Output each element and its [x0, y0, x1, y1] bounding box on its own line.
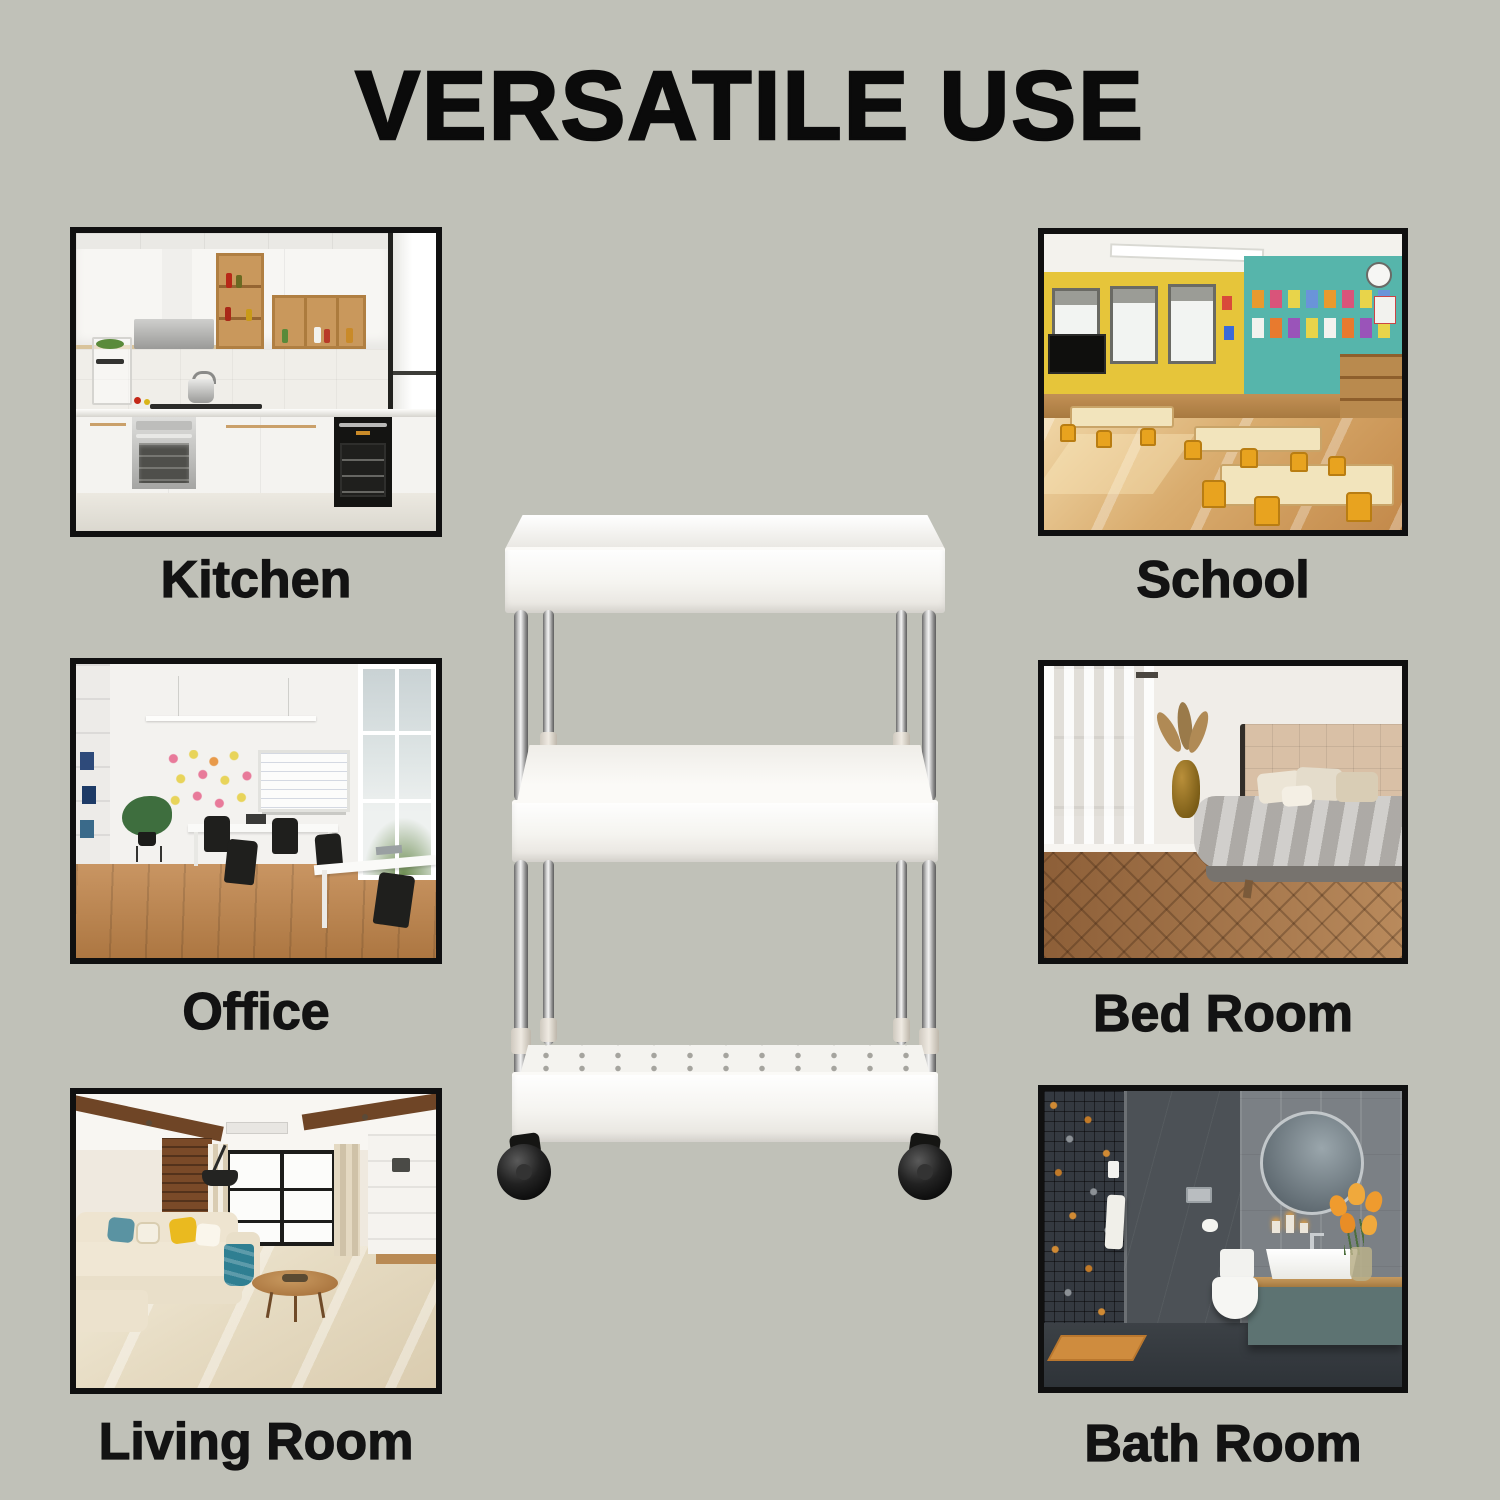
cart-pole-upper-left-back [543, 610, 554, 748]
bedroom-pillow-3 [1336, 772, 1378, 802]
kitchen-label: Kitchen [70, 550, 442, 610]
kitchen-oven-black-display [356, 431, 370, 435]
living-coffee-table-leg-2 [294, 1296, 297, 1322]
bathroom-faucet-spout [1310, 1233, 1324, 1236]
kitchen-countertop [76, 409, 436, 417]
cart-sleeve-bottom-right-back [893, 1018, 910, 1042]
school-poster-blue [1224, 326, 1234, 340]
living-window-mullion-h2 [230, 1220, 332, 1223]
bathroom-photo [1044, 1091, 1402, 1387]
living-table-decor [282, 1274, 308, 1282]
bedroom-bed-skirt [1206, 866, 1402, 882]
kitchen-oven-silver [132, 417, 196, 489]
office-chair-5 [373, 872, 416, 929]
school-chair-7 [1328, 456, 1346, 476]
office-whiteboard-tray [262, 812, 346, 815]
school-table-back [1070, 406, 1174, 428]
cart-pole-upper-right-back [896, 610, 907, 748]
school-tv [1048, 334, 1106, 374]
kitchen-fruit-red [134, 397, 141, 404]
bathroom-paper-roll [1202, 1219, 1218, 1232]
living-window-mullion-v [280, 1154, 284, 1242]
kitchen-bottle-amber [246, 309, 252, 321]
product-photo [490, 510, 960, 1210]
living-room-label: Living Room [70, 1412, 442, 1472]
bedroom-vase [1172, 760, 1200, 818]
bedroom-duvet [1194, 796, 1402, 870]
cart-middle-basket [512, 800, 938, 862]
bedroom-photo [1044, 666, 1402, 958]
office-books-navy [82, 786, 96, 804]
bedroom-photo-frame [1038, 660, 1408, 964]
kitchen-photo [76, 233, 436, 531]
school-chair-10 [1346, 492, 1372, 522]
kitchen-open-shelf-tall [216, 253, 264, 349]
kitchen-oven-silver-control-bar [136, 421, 192, 430]
school-table-middle [1194, 426, 1322, 452]
office-chair-3 [224, 839, 258, 886]
bathroom-towel [1105, 1195, 1126, 1250]
kitchen-oven-black-handle [339, 423, 387, 427]
school-poster-red [1222, 296, 1232, 310]
cart-caster-hub-right [917, 1164, 933, 1180]
bedroom-curtain [1044, 666, 1154, 851]
living-teal-throw [224, 1244, 254, 1286]
bathroom-tulip-2 [1348, 1183, 1365, 1205]
page-title: VERSATILE USE [0, 50, 1500, 162]
kitchen-rack-plant [96, 339, 124, 349]
school-wall-chart [1374, 296, 1396, 324]
kitchen-drawer-handle-1 [90, 423, 126, 426]
living-sofa-seat [76, 1242, 248, 1280]
cart-top-basket-opening [505, 515, 945, 549]
bathroom-candle-3 [1300, 1223, 1308, 1233]
living-room-photo [76, 1094, 436, 1388]
bathroom-label: Bath Room [1038, 1414, 1408, 1474]
living-ceiling-vent [226, 1122, 288, 1134]
office-books-teal [80, 820, 94, 838]
kitchen-oven-black-window [340, 443, 386, 497]
living-pillow-teal [107, 1217, 135, 1244]
cart-caster-hub-left [516, 1164, 532, 1180]
office-books-blue [80, 752, 94, 770]
kitchen-fruit-yellow [144, 399, 150, 405]
office-sticky-notes [166, 750, 258, 822]
office-chair-2 [272, 818, 298, 854]
kitchen-rack-pan [96, 359, 124, 364]
school-label: School [1038, 550, 1408, 610]
page-root: VERSATILE USE [0, 0, 1500, 1500]
office-laptop [246, 814, 266, 824]
office-desk-front-leg [322, 870, 327, 928]
bedroom-label: Bed Room [1038, 984, 1408, 1044]
kitchen-oven-silver-window [139, 443, 189, 483]
living-pillow-patterned [136, 1222, 160, 1244]
kitchen-oven-silver-handle [136, 434, 192, 438]
office-plant-stand [136, 846, 162, 862]
office-light-wire-1 [178, 676, 179, 716]
bathroom-candle-2 [1286, 1215, 1294, 1233]
school-chair-5 [1240, 448, 1258, 468]
kitchen-jar-amber [346, 328, 353, 343]
kitchen-jar-green [282, 329, 288, 343]
living-shelves-right [368, 1134, 436, 1254]
living-floor-lamp-shade [202, 1170, 238, 1186]
office-whiteboard [258, 750, 350, 812]
kitchen-oven-black [334, 417, 392, 507]
bathroom-photo-frame [1038, 1085, 1408, 1393]
office-photo [76, 664, 436, 958]
kitchen-photo-frame [70, 227, 442, 537]
kitchen-window-sill [393, 371, 436, 375]
bathroom-flush-plate [1186, 1187, 1212, 1203]
kitchen-drawer-handle-2 [226, 425, 316, 428]
school-chair-6 [1290, 452, 1308, 472]
office-plant [122, 796, 172, 836]
cart-sleeve-bottom-left-back [540, 1018, 557, 1042]
bathroom-vase [1350, 1247, 1372, 1281]
school-chair-9 [1254, 496, 1280, 526]
school-bookshelf [1340, 354, 1402, 418]
kitchen-jar-white [314, 327, 321, 343]
living-curtain-right [334, 1144, 360, 1256]
cart-top-basket [505, 547, 945, 613]
living-pillow-cream [195, 1223, 221, 1247]
kitchen-bottle-red-2 [225, 307, 231, 321]
office-plant-pot [138, 832, 156, 846]
living-spotlight-1 [146, 1120, 152, 1126]
living-shelf-plant [392, 1158, 410, 1172]
kitchen-kettle [188, 379, 214, 403]
kitchen-hood-chimney [162, 249, 192, 321]
cart-middle-basket-opening [517, 745, 933, 802]
living-sofa-chaise [76, 1290, 148, 1332]
kitchen-jar-red [324, 329, 330, 343]
living-room-photo-frame [70, 1088, 442, 1394]
bathroom-toilet-tank [1220, 1249, 1254, 1279]
office-chair-1 [204, 816, 230, 852]
school-chair-8 [1202, 480, 1226, 508]
bedroom-pillow-4 [1281, 785, 1312, 807]
school-window-2 [1110, 286, 1158, 364]
office-pendant-light [146, 716, 316, 721]
school-clock [1366, 262, 1392, 288]
kitchen-hood [134, 319, 214, 349]
kitchen-bottle-red [226, 273, 232, 288]
bathroom-shower-mat [1047, 1335, 1147, 1361]
kitchen-bottle-olive [236, 275, 242, 288]
school-window-3 [1168, 284, 1216, 364]
bathroom-dispenser [1108, 1161, 1119, 1178]
office-label: Office [70, 982, 442, 1042]
school-chair-2 [1096, 430, 1112, 448]
school-photo [1044, 234, 1402, 530]
school-chair-3 [1140, 428, 1156, 446]
office-desk-back-leg-1 [194, 832, 198, 866]
bathroom-candle-1 [1272, 1221, 1280, 1233]
office-photo-frame [70, 658, 442, 964]
cart-bottom-basket [512, 1072, 938, 1142]
office-light-wire-2 [288, 678, 289, 716]
living-spotlight-2 [362, 1114, 368, 1120]
bathroom-vanity-cabinet [1248, 1287, 1402, 1345]
living-pillow-yellow [168, 1216, 198, 1245]
school-chair-4 [1184, 440, 1202, 460]
living-media-bench [376, 1254, 436, 1264]
cart-bottom-basket-perforated-deck [520, 1045, 930, 1075]
living-window-mullion-h1 [230, 1188, 332, 1191]
bedroom-curtain-rod-tip [1136, 672, 1158, 678]
school-chair-1 [1060, 424, 1076, 442]
school-photo-frame [1038, 228, 1408, 536]
